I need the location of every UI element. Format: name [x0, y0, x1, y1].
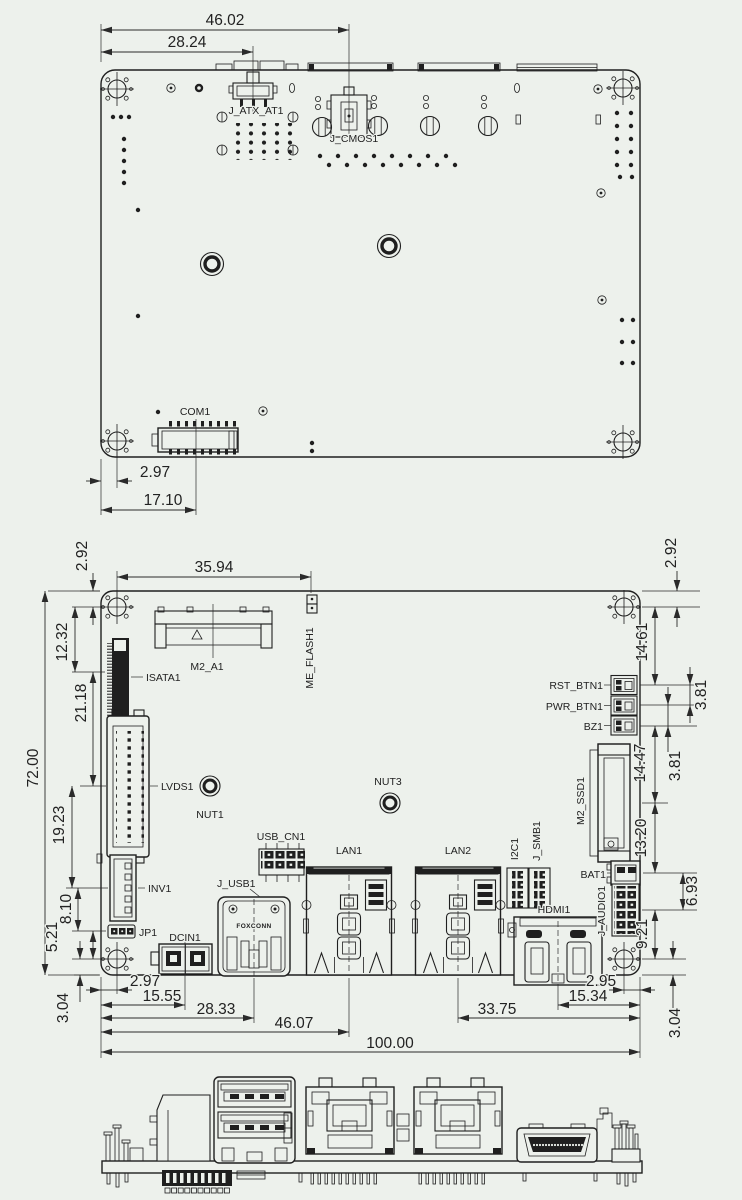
dim-19-23: 19.23 [51, 806, 68, 845]
connector-lvds1 [107, 710, 158, 863]
dim-17-10: 17.10 [144, 492, 183, 509]
label-j-cmos1: J_CMOS1 [330, 133, 379, 145]
label-hdmi1: HDMI1 [538, 904, 571, 916]
dim-2-92-left: 2.92 [74, 541, 91, 571]
front-view [102, 1077, 642, 1193]
dim-5-21: 5.21 [44, 922, 61, 952]
dim-13-20: 13.20 [633, 818, 650, 857]
dim-15-55: 15.55 [143, 988, 182, 1005]
connector-i2c1 [507, 868, 528, 908]
connector-me-flash1 [307, 595, 317, 613]
dim-12-32: 12.32 [54, 623, 71, 662]
dim-8-10: 8.10 [58, 894, 75, 925]
connector-pwr-btn1 [611, 696, 637, 715]
dim-2-92-right: 2.92 [663, 538, 680, 568]
capacitor [479, 95, 498, 135]
capacitor [421, 95, 440, 135]
mounting-hole [607, 590, 641, 624]
nut-standoff [378, 235, 401, 258]
label-m2-a1: M2_A1 [190, 661, 223, 673]
capacitor [313, 96, 332, 136]
label-me-flash1: ME_FLASH1 [304, 627, 316, 688]
lan-pins-bottom [311, 1173, 485, 1184]
nut-standoff [201, 253, 224, 276]
connector-j-usb1 [218, 889, 290, 976]
dim-28-24: 28.24 [168, 34, 207, 51]
label-isata1: ISATA1 [146, 672, 181, 684]
label-bat1: BAT1 [581, 869, 607, 881]
via-dots [111, 111, 635, 453]
connector-jp1 [108, 925, 135, 938]
label-com1: COM1 [180, 406, 210, 418]
dim-14-61: 14.61 [634, 623, 651, 662]
dim-2-97-top: 2.97 [140, 464, 170, 481]
dim-21-18: 21.18 [73, 684, 90, 723]
nut3-standoff [380, 793, 400, 813]
connector-lan1 [302, 867, 396, 975]
lan1-front [306, 1078, 394, 1154]
label-lan1: LAN1 [336, 845, 362, 857]
label-bz1: BZ1 [584, 721, 603, 733]
dim-28-33: 28.33 [197, 1001, 236, 1018]
dim-33-75: 33.75 [478, 1001, 517, 1018]
label-nut3: NUT3 [374, 776, 402, 788]
label-lvds1: LVDS1 [161, 781, 194, 793]
com1-connector [152, 421, 238, 455]
bottom-pin-header [162, 1170, 232, 1193]
label-lan2: LAN2 [445, 845, 471, 857]
hdmi-front [517, 1124, 597, 1162]
connector-inv1 [110, 855, 145, 921]
label-i2c1: I2C1 [509, 838, 521, 860]
connector-m2-a1 [155, 604, 272, 658]
label-jp1: JP1 [139, 927, 157, 939]
label-inv1: INV1 [148, 883, 172, 895]
label-rst-btn1: RST_BTN1 [549, 680, 603, 692]
dim-3-04-left: 3.04 [55, 993, 72, 1024]
dim-100-00: 100.00 [366, 1035, 414, 1052]
dim-14-47: 14.47 [632, 744, 649, 783]
label-j-usb1: J_USB1 [217, 878, 256, 890]
dim-3-81-b: 3.81 [667, 751, 684, 781]
connector-rst-btn1 [611, 676, 637, 695]
connector-usb-cn1 [259, 843, 305, 882]
connector-j-smb1 [529, 868, 550, 908]
usb-stack-front [214, 1077, 295, 1163]
nut1-standoff [200, 776, 220, 796]
lan2-front [414, 1078, 502, 1154]
label-dcin1: DCIN1 [169, 932, 201, 944]
dc-jack-side [150, 1095, 210, 1161]
label-j-atx-at1: J_ATX_AT1 [228, 105, 283, 117]
top-view: 46.02 28.24 2.97 17.10 J_ATX_AT1 J_CMOS1… [86, 12, 640, 515]
connector-m2-ssd1 [590, 744, 630, 862]
pcb-mechanical-drawing: 46.02 28.24 2.97 17.10 J_ATX_AT1 J_CMOS1… [0, 0, 742, 1200]
bracket-wire [597, 1113, 612, 1132]
left-pin-components [104, 1125, 143, 1187]
mounting-hole [100, 72, 134, 106]
dim-15-34: 15.34 [569, 988, 608, 1005]
audio-header-front [612, 1121, 640, 1186]
dim-9-21: 9.21 [634, 919, 651, 949]
label-j-audio1: J_AUDIO1 [596, 886, 608, 936]
dim-46-07: 46.07 [275, 1015, 314, 1032]
dim-35-94: 35.94 [195, 559, 234, 576]
label-m2-ssd1: M2_SSD1 [575, 777, 587, 825]
component-view: 35.94 2.92 2.92 12.32 21.18 72.00 19.23 … [25, 538, 710, 1058]
connector-lan2 [411, 867, 505, 975]
dim-3-81-a: 3.81 [693, 680, 710, 710]
dim-3-04-right: 3.04 [667, 1008, 684, 1039]
dim-6-93: 6.93 [684, 876, 701, 906]
connector-bz1 [611, 716, 637, 735]
dim-72-00: 72.00 [25, 748, 42, 787]
dim-46-02: 46.02 [206, 12, 245, 29]
connector-dcin1 [151, 944, 212, 974]
mounting-hole [606, 71, 640, 105]
label-j-smb1: J_SMB1 [531, 821, 543, 861]
label-nut1: NUT1 [196, 809, 224, 821]
via-grid [229, 123, 293, 160]
dim-2-95: 2.95 [586, 973, 616, 990]
usb-brand-marking: FOXCONN [236, 923, 271, 930]
label-pwr-btn1: PWR_BTN1 [546, 701, 603, 713]
label-usb-cn1: USB_CN1 [257, 831, 306, 843]
